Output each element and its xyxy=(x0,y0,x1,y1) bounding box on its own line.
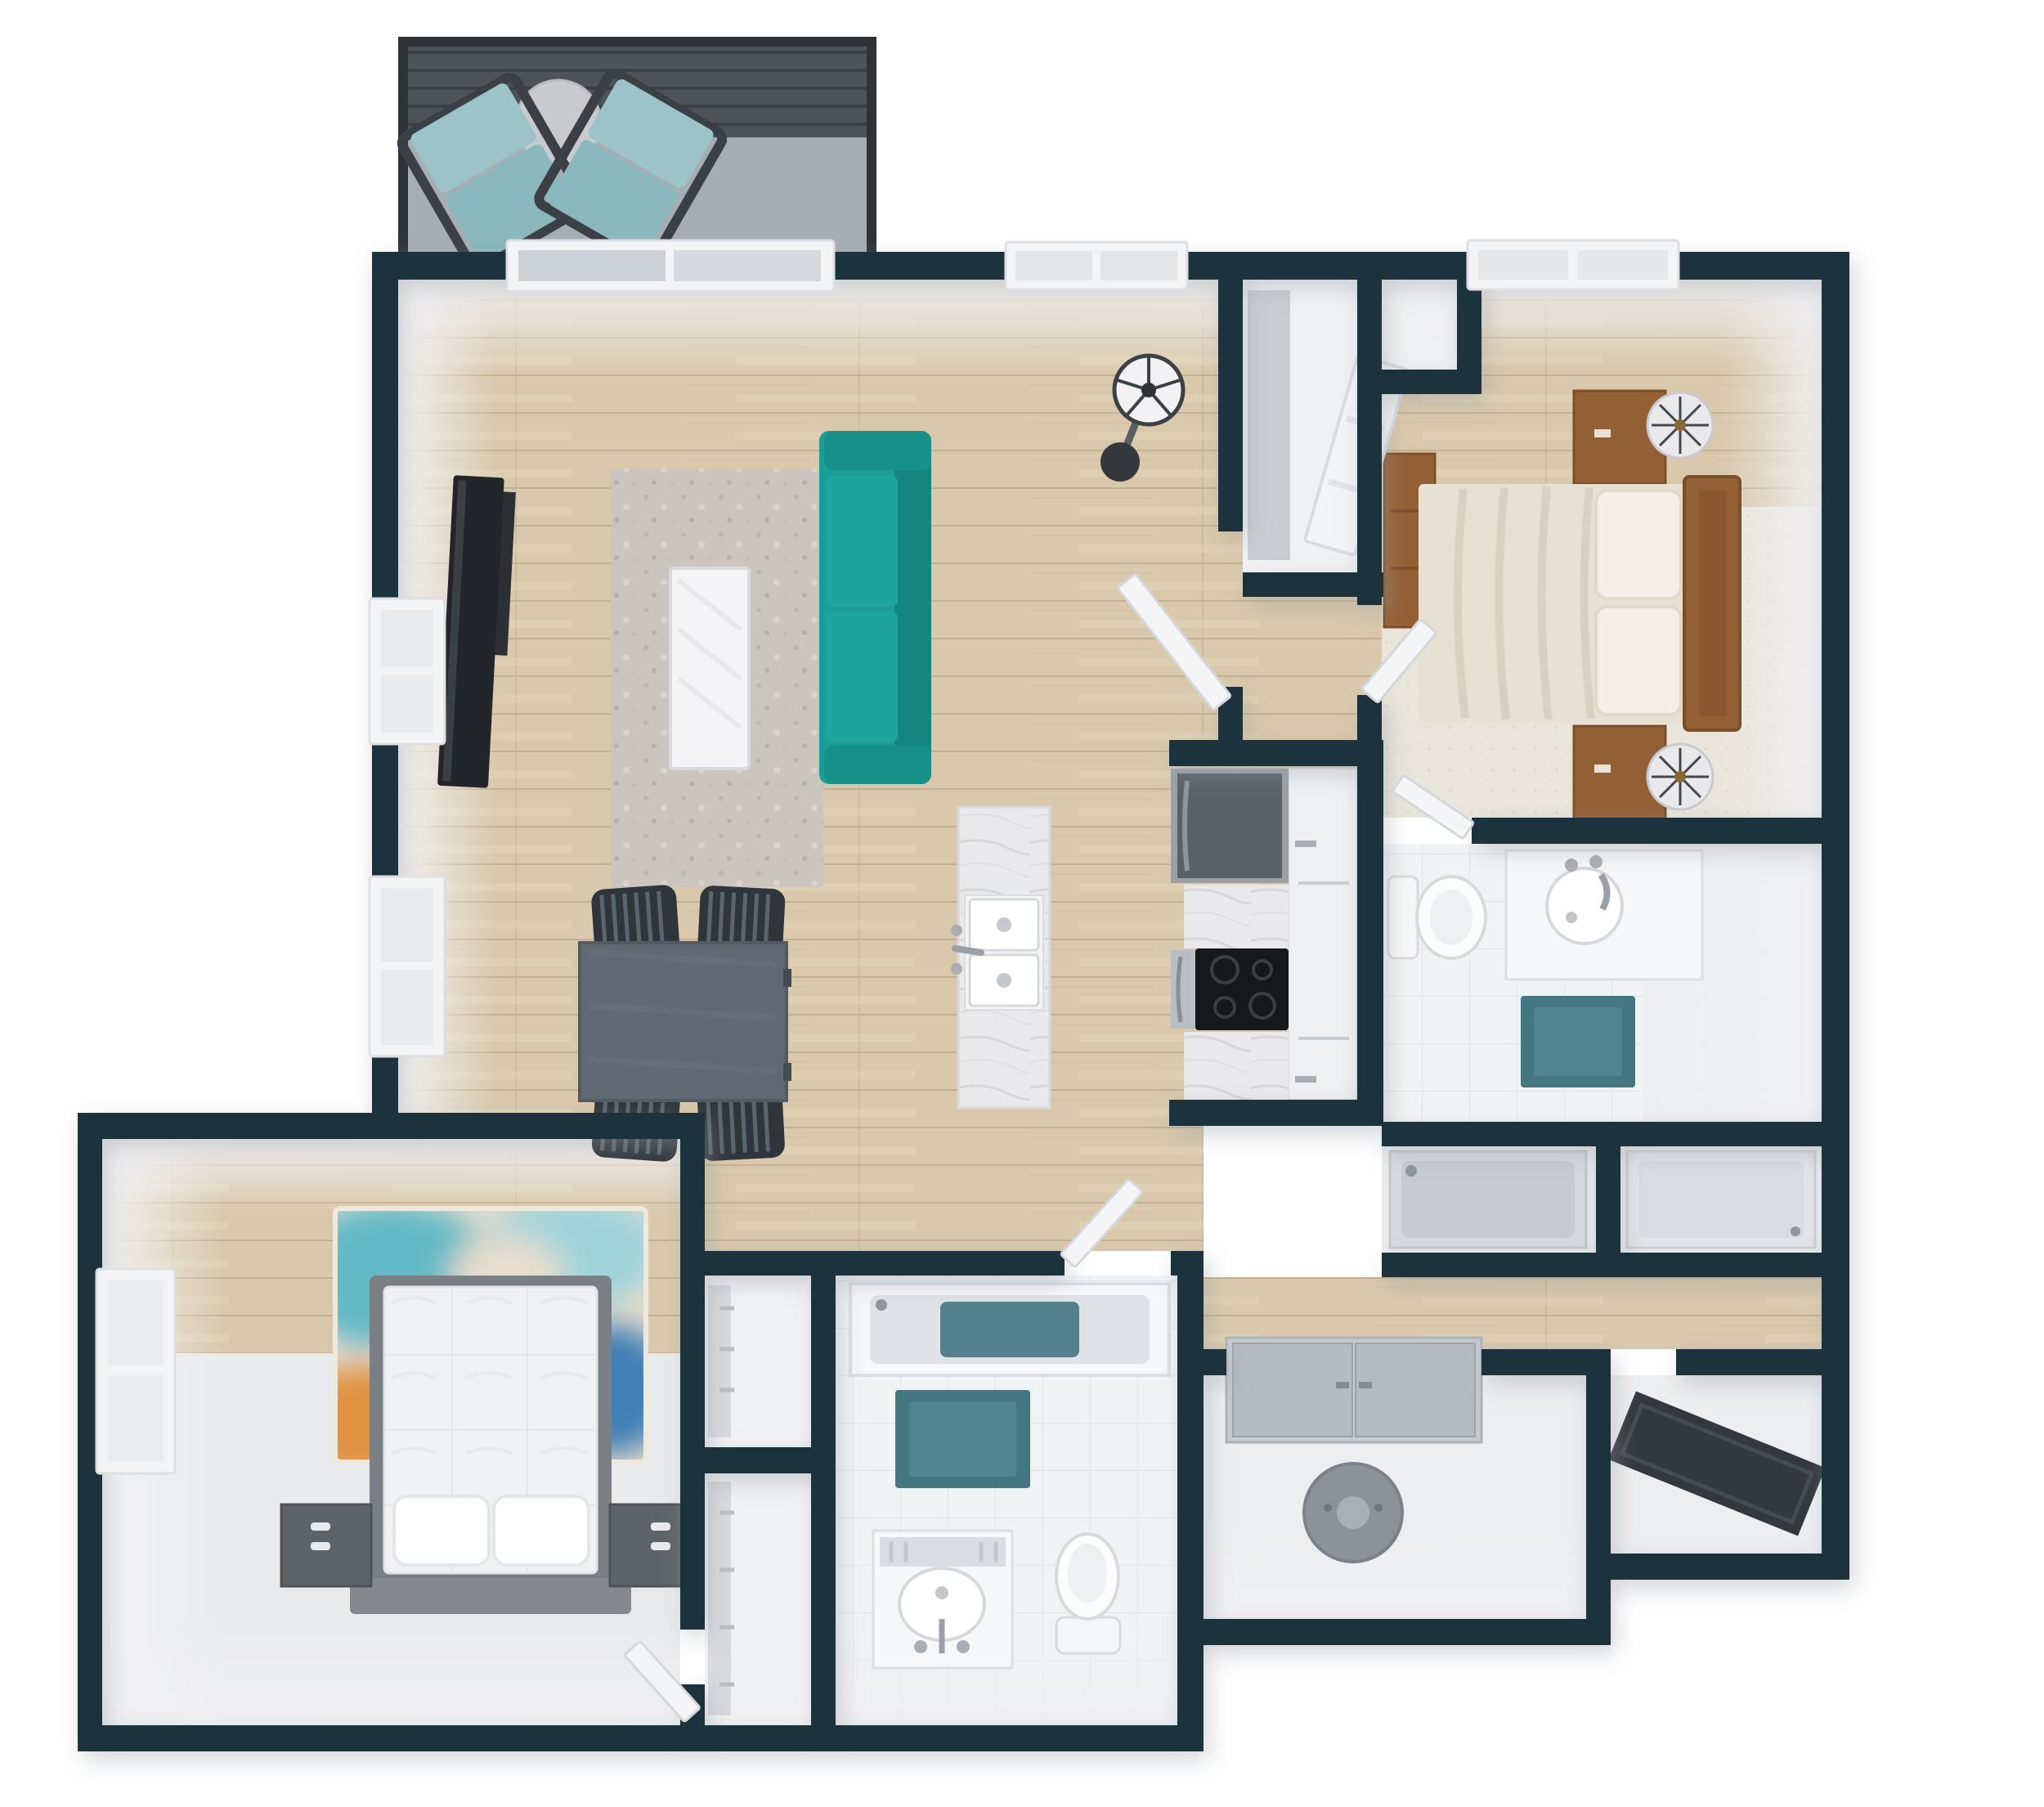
bed2-footboard xyxy=(350,1578,631,1614)
wall-bathroom2-left xyxy=(811,1251,836,1751)
window-glass xyxy=(108,1280,164,1365)
wall-hall-laundry-right xyxy=(1481,1349,1611,1375)
bath-mat-pattern xyxy=(1534,1007,1622,1076)
wall-kitchen-bottom xyxy=(1169,1100,1383,1126)
coffee-table xyxy=(670,568,749,769)
window-glass xyxy=(1578,250,1668,280)
pillow xyxy=(1596,607,1681,715)
wall-closet-top xyxy=(705,1251,811,1276)
sofa-cushion xyxy=(826,612,898,742)
nightstand-handle xyxy=(1594,429,1611,437)
kitchen-counter xyxy=(1184,885,1289,948)
window-living-left-1 xyxy=(370,599,445,744)
faucet-handle xyxy=(914,1640,927,1653)
window-glass xyxy=(674,250,821,281)
teal-sofa xyxy=(819,431,931,784)
closet-shelf xyxy=(708,1482,731,1715)
kitchen-counter xyxy=(1184,1032,1289,1100)
coffee-table-top xyxy=(670,568,749,769)
sofa-armrest-top xyxy=(824,431,931,470)
tub-2 xyxy=(850,1284,1169,1375)
fan-hub xyxy=(1141,383,1156,397)
wall-walkin-top xyxy=(1676,1349,1849,1375)
floor-plan-svg xyxy=(0,0,2044,1807)
wall-bathroom2-top xyxy=(811,1251,1065,1276)
toilet-tank xyxy=(1388,877,1418,958)
pillow xyxy=(494,1496,589,1565)
sofa-armrest-bottom xyxy=(824,745,931,784)
wall-right xyxy=(1822,252,1849,1580)
wall-bathroom2-right xyxy=(1177,1251,1204,1751)
dining-table xyxy=(580,943,791,1101)
fan-base xyxy=(1100,442,1140,482)
door-panel xyxy=(1233,1343,1352,1437)
faucet-handle xyxy=(957,1640,970,1653)
sink-drain xyxy=(997,973,1011,988)
headboard-panel xyxy=(1699,491,1727,716)
bedroom-2 xyxy=(278,1194,700,1614)
window-glass xyxy=(518,250,666,281)
window-glass xyxy=(108,1375,164,1462)
toilet xyxy=(1388,877,1486,958)
wall-bedroom1-bottom xyxy=(1472,818,1849,844)
nightstand-handle xyxy=(651,1542,670,1550)
bed-1 xyxy=(1419,477,1740,730)
wall-kitchen-bathroom1 xyxy=(1357,766,1383,1126)
shower-drain xyxy=(1791,1226,1800,1236)
bath-mat-pattern xyxy=(909,1401,1016,1477)
wall-hall-bedroom1-lower xyxy=(1357,695,1382,766)
toilet-seat xyxy=(1068,1544,1107,1603)
door-handle xyxy=(1336,1382,1349,1388)
faucet-handle xyxy=(951,925,962,936)
wall-pantry-bottom xyxy=(1243,572,1383,597)
pantry-cabinet xyxy=(1248,290,1290,560)
water-heater-fitting xyxy=(1374,1504,1383,1512)
water-heater-fitting xyxy=(1324,1504,1332,1512)
wall-bottom xyxy=(78,1725,1204,1751)
kitchen-island xyxy=(951,807,1050,1108)
cabinet-handle xyxy=(1295,841,1316,847)
cooktop xyxy=(1195,948,1289,1030)
window-glass xyxy=(1100,251,1177,280)
faucet-handle xyxy=(1565,859,1578,872)
cabinet-column xyxy=(1289,769,1357,1100)
nightstand-handle xyxy=(651,1522,670,1531)
wall-walkin-bottom xyxy=(1586,1554,1849,1580)
wall-bathroom1-bottom xyxy=(1382,1122,1849,1146)
window-living-left-2 xyxy=(370,877,445,1056)
shower-floor xyxy=(1638,1161,1804,1238)
double-doors xyxy=(1226,1338,1481,1442)
pillow xyxy=(394,1496,489,1565)
window-glass xyxy=(381,970,433,1045)
door-panel xyxy=(1356,1343,1475,1437)
table-edge-detail xyxy=(783,1063,791,1081)
lamp-center xyxy=(1674,419,1686,431)
tub-mat xyxy=(940,1302,1079,1357)
faucet xyxy=(955,948,981,953)
bed-2 xyxy=(350,1276,631,1614)
water-heater xyxy=(1304,1464,1402,1562)
wall-closet-left xyxy=(680,1139,705,1630)
kitchen-wall-run xyxy=(1171,769,1357,1100)
round-sink xyxy=(1547,868,1622,944)
wall-laundry-bottom xyxy=(1177,1619,1611,1645)
nightstand-handle xyxy=(311,1542,330,1550)
table-lamp xyxy=(1647,392,1713,458)
fridge-handle xyxy=(1185,781,1187,871)
table-lamp xyxy=(1647,744,1713,809)
tub-interior xyxy=(1401,1161,1575,1238)
sink-drain xyxy=(935,1586,948,1599)
sofa-back xyxy=(894,442,931,773)
nightstand-handle xyxy=(1594,764,1611,773)
door-handle xyxy=(1359,1382,1372,1388)
lamp-center xyxy=(1674,771,1686,782)
window-glass xyxy=(1015,251,1092,280)
window-bedroom2 xyxy=(96,1269,175,1473)
wall-stalls-bottom xyxy=(1382,1253,1849,1277)
tub-stall xyxy=(1390,1151,1586,1248)
sofa-cushion xyxy=(826,476,898,607)
window-glass xyxy=(1478,250,1568,280)
wall-closet-divider xyxy=(705,1447,811,1473)
vanity-backsplash xyxy=(880,1537,1006,1567)
toilet-seat xyxy=(1430,890,1472,945)
wall-living-hall xyxy=(1218,278,1243,531)
vanity-1 xyxy=(1506,850,1702,980)
hall-closets xyxy=(708,1285,734,1715)
wall-small-closet-right xyxy=(1457,278,1481,394)
nightstand-2-left xyxy=(281,1504,371,1586)
window-living-balcony xyxy=(507,240,834,291)
window-glass xyxy=(381,610,433,667)
window-glass xyxy=(381,888,433,962)
window-living-2 xyxy=(1006,242,1187,289)
wall-kitchen-top xyxy=(1169,740,1383,766)
sink-drain xyxy=(997,917,1011,932)
tub-faucet xyxy=(1405,1165,1417,1177)
wall-bedroom2-top xyxy=(78,1113,705,1139)
nightstand-handle xyxy=(311,1522,330,1531)
toilet-tank xyxy=(1056,1617,1120,1653)
shower-stall xyxy=(1627,1151,1815,1248)
window-glass xyxy=(381,675,433,733)
table-edge-detail xyxy=(783,969,791,987)
cabinet-handle xyxy=(1295,1076,1316,1083)
window-bedroom1 xyxy=(1468,240,1679,289)
water-heater-top xyxy=(1337,1496,1369,1529)
toilet-2 xyxy=(1056,1534,1120,1653)
refrigerator xyxy=(1177,773,1282,878)
vanity-2 xyxy=(873,1531,1012,1668)
balcony xyxy=(398,37,876,271)
floor-plan-stage xyxy=(0,0,2044,1807)
wall-laundry-walkin xyxy=(1586,1375,1611,1645)
oven-door xyxy=(1171,950,1195,1029)
faucet-handle xyxy=(951,963,962,975)
pillow xyxy=(1596,491,1681,599)
wall-hall-laundry-left xyxy=(1204,1349,1226,1375)
wall-stall-divider xyxy=(1596,1146,1620,1253)
tub-faucet xyxy=(876,1299,887,1311)
sink-drain xyxy=(1566,912,1577,923)
faucet-handle xyxy=(1589,855,1602,868)
wall-hall-bedroom1 xyxy=(1357,278,1382,605)
